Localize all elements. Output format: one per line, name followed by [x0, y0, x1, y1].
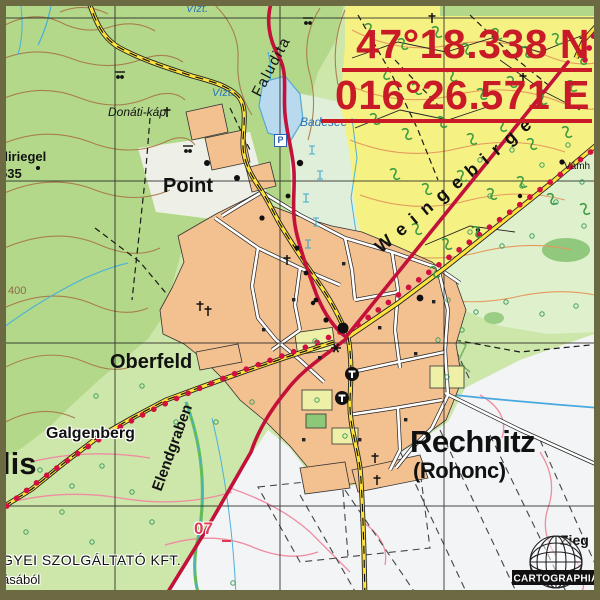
label-donati-kap: Donáti-káp.	[108, 106, 169, 118]
label-contour-400: 400	[8, 286, 26, 297]
coordinate-overlay: 47°18.338 N 016°26.571 E	[321, 24, 592, 126]
label-rohonc: (Rohonc)	[413, 460, 506, 482]
logo-text: CARTOGRAPHIA	[513, 574, 598, 585]
cartographia-logo: CARTOGRAPHIA	[512, 526, 600, 596]
label-diriegel: diriegel	[0, 150, 46, 163]
label-galgenberg: Galgenberg	[46, 426, 135, 442]
longitude-text: 016°26.571 E	[321, 75, 592, 123]
label-credit-1: GYEI SZOLGÁLTATÓ KFT.	[2, 553, 181, 567]
label-credit-2: ásából	[2, 573, 40, 586]
label-point: Point	[163, 176, 213, 196]
parking-symbol: P	[274, 134, 287, 147]
label-oberfeld: Oberfeld	[110, 352, 192, 372]
label-rechnitz: Rechnitz	[410, 426, 535, 457]
map-canvas: Vízt. Faludita Vízt. Badesee Donáti-káp.…	[0, 0, 600, 600]
label-road-07: 07	[194, 520, 213, 537]
label-vizt-top: Vízt.	[186, 4, 208, 15]
label-lis: lis	[2, 448, 36, 479]
spot-height-dot	[36, 166, 40, 170]
latitude-text: 47°18.338 N	[342, 24, 592, 72]
label-vamh: Vámh	[564, 162, 590, 172]
label-vizt-mid: Vízt.	[212, 88, 234, 99]
church-dot	[338, 323, 349, 334]
label-spot-height: 535	[0, 167, 22, 180]
